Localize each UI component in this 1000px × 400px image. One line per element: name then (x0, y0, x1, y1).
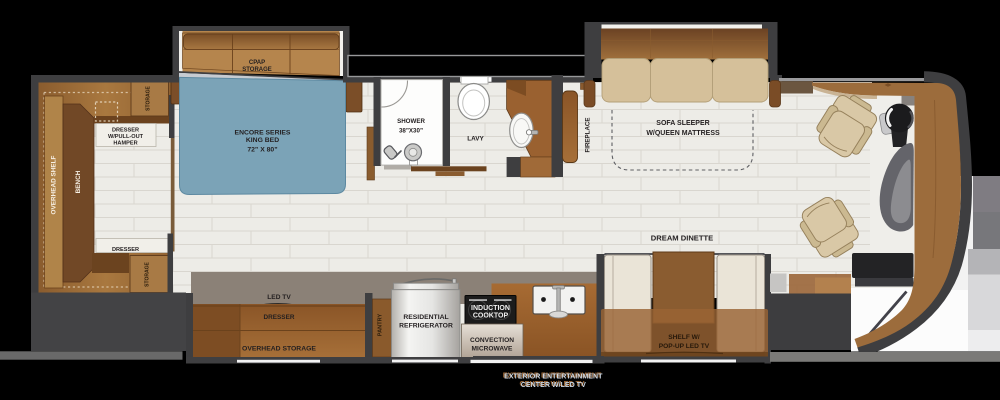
svg-text:W/PULL-OUT: W/PULL-OUT (108, 134, 144, 140)
svg-text:DRESSER: DRESSER (112, 128, 139, 134)
svg-text:LAVY: LAVY (467, 136, 484, 143)
svg-text:POP-UP LED TV: POP-UP LED TV (659, 343, 710, 350)
svg-text:38”X30”: 38”X30” (399, 128, 423, 135)
svg-text:RESIDENTIAL: RESIDENTIAL (403, 314, 448, 321)
svg-text:OVERHEAD STORAGE: OVERHEAD STORAGE (242, 346, 316, 353)
svg-text:72” X 80”: 72” X 80” (247, 147, 277, 154)
svg-text:CPAP: CPAP (249, 60, 265, 66)
svg-text:STORAGE: STORAGE (242, 67, 272, 73)
svg-text:INDUCTION: INDUCTION (471, 305, 510, 312)
svg-text:MICROWAVE: MICROWAVE (472, 346, 514, 353)
svg-text:OVERHEAD SHELF: OVERHEAD SHELF (51, 155, 58, 214)
svg-text:DRESSER: DRESSER (112, 247, 139, 253)
svg-text:COOKTOP: COOKTOP (473, 313, 509, 320)
svg-text:ENCORE SERIES: ENCORE SERIES (235, 130, 291, 137)
svg-text:DREAM DINETTE: DREAM DINETTE (651, 234, 713, 243)
svg-text:DRESSER: DRESSER (264, 314, 295, 321)
svg-text:LED TV: LED TV (267, 294, 291, 301)
svg-text:HAMPER: HAMPER (113, 141, 137, 147)
svg-text:SHELF W/: SHELF W/ (668, 334, 700, 341)
svg-text:BENCH: BENCH (75, 170, 82, 193)
svg-text:EXTERIOR ENTERTAINMENT: EXTERIOR ENTERTAINMENT (504, 372, 603, 380)
svg-text:KING BED: KING BED (246, 137, 279, 144)
svg-text:W/QUEEN MATTRESS: W/QUEEN MATTRESS (646, 130, 720, 137)
svg-text:STORAGE: STORAGE (146, 86, 152, 111)
svg-text:SHOWER: SHOWER (397, 118, 425, 125)
svg-text:FIREPLACE: FIREPLACE (585, 117, 592, 152)
svg-text:CONVECTION: CONVECTION (470, 337, 514, 344)
svg-text:CENTER W/LED TV: CENTER W/LED TV (521, 381, 586, 389)
svg-text:PANTRY: PANTRY (378, 314, 384, 337)
svg-text:STORAGE: STORAGE (145, 262, 151, 287)
svg-text:SOFA SLEEPER: SOFA SLEEPER (656, 120, 709, 127)
svg-text:REFRIGERATOR: REFRIGERATOR (399, 322, 453, 329)
